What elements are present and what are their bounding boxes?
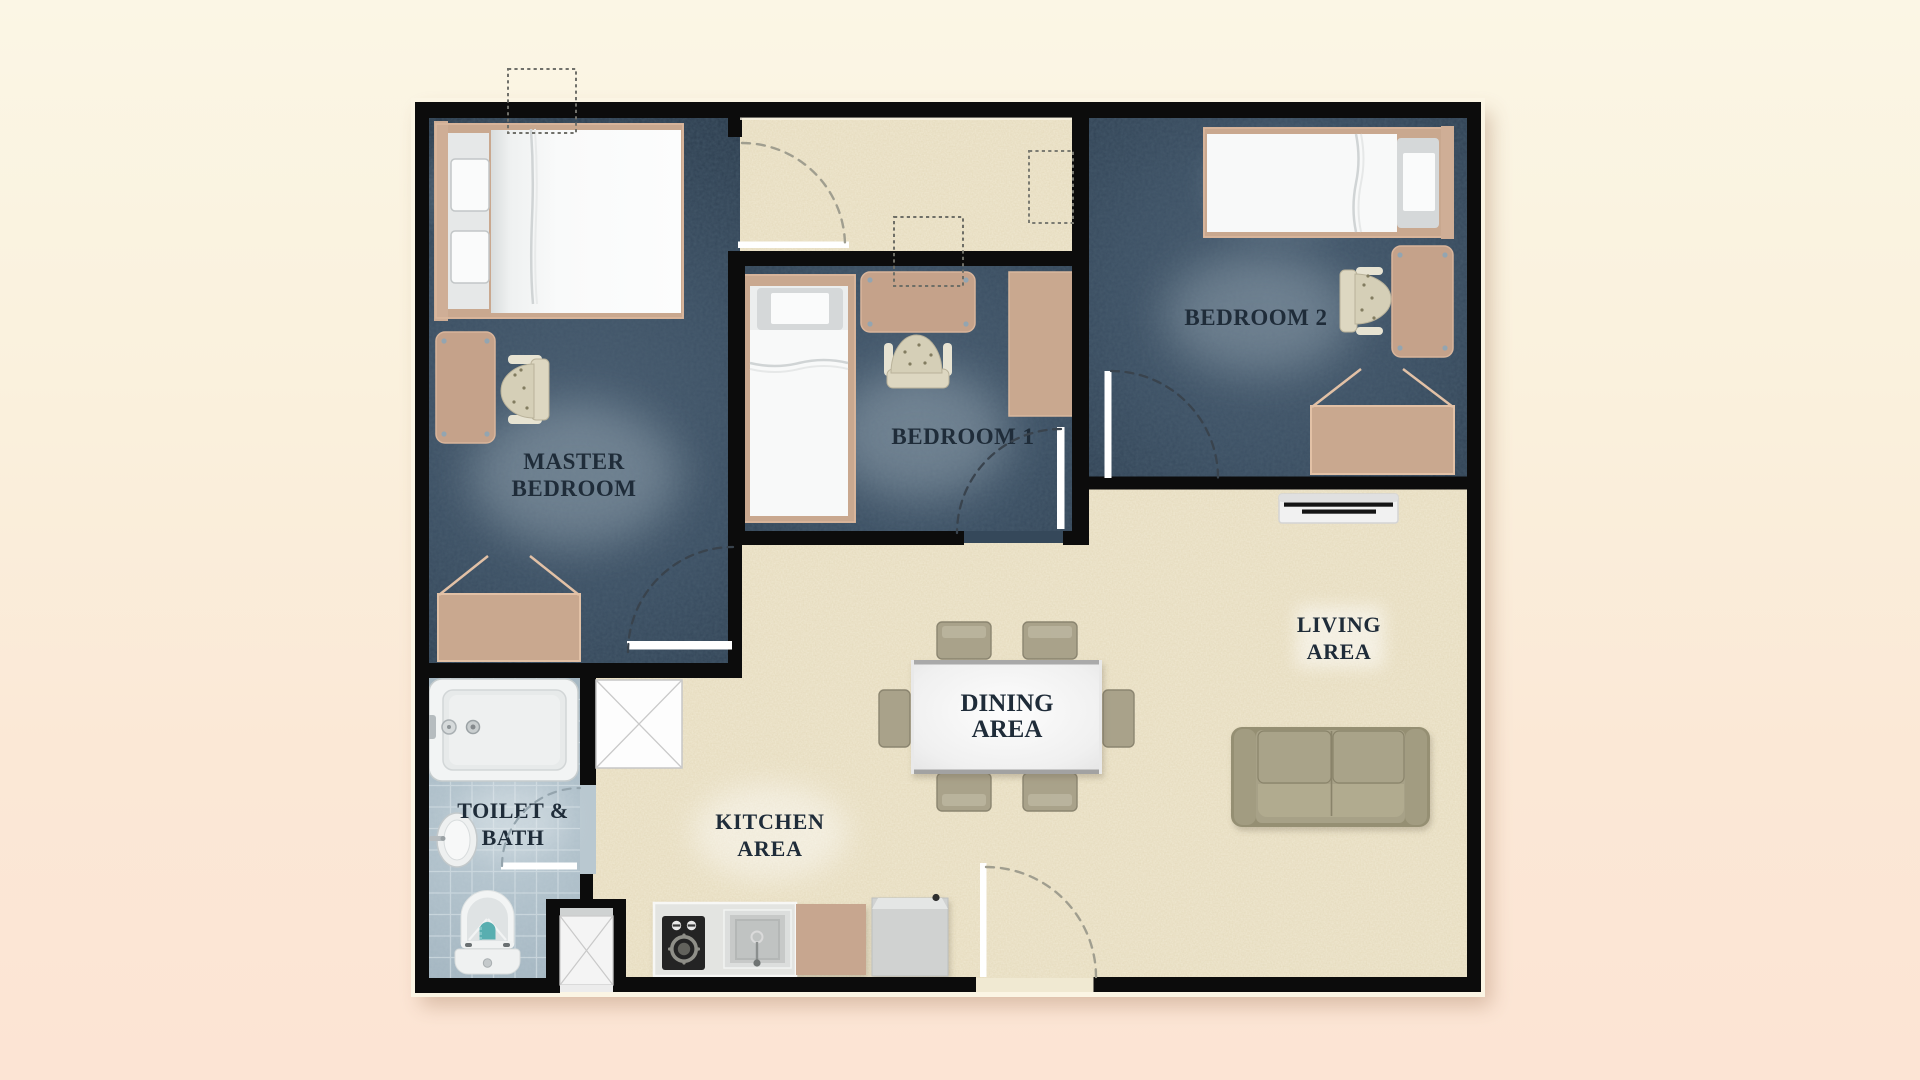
svg-text:LIVING: LIVING <box>1297 612 1381 637</box>
svg-text:TOILET &: TOILET & <box>457 798 568 823</box>
svg-text:BEDROOM 1: BEDROOM 1 <box>891 424 1034 449</box>
svg-text:AREA: AREA <box>1307 639 1372 664</box>
svg-text:AREA: AREA <box>972 716 1043 743</box>
svg-text:KITCHEN: KITCHEN <box>715 809 825 834</box>
svg-text:MASTER: MASTER <box>523 449 624 474</box>
svg-text:BATH: BATH <box>482 825 545 850</box>
svg-text:BEDROOM: BEDROOM <box>512 476 637 501</box>
svg-text:BEDROOM 2: BEDROOM 2 <box>1184 305 1327 330</box>
svg-text:AREA: AREA <box>737 836 803 861</box>
svg-text:DINING: DINING <box>960 690 1053 717</box>
